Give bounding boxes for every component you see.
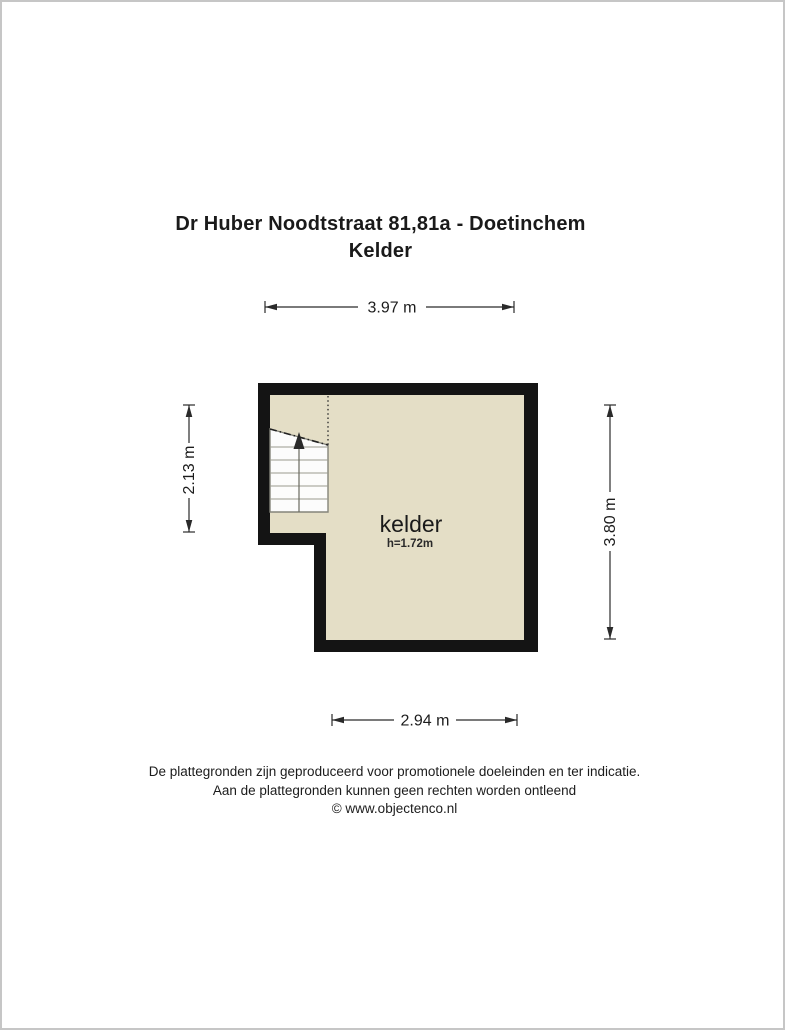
copyright-line: © www.objectenco.nl — [2, 800, 785, 819]
disclaimer: De plattegronden zijn geproduceerd voor … — [2, 763, 785, 819]
dimension-bottom-label: 2.94 m — [401, 713, 450, 730]
dimension-bottom: 2.94 m — [332, 713, 517, 730]
dimension-left-label: 2.13 m — [181, 446, 198, 495]
dimension-top-label: 3.97 m — [368, 300, 417, 317]
room-height-label: h=1.72m — [387, 538, 433, 550]
floorplan-page: Dr Huber Noodtstraat 81,81a - Doetinchem… — [0, 0, 785, 1030]
room-label: kelder — [380, 511, 443, 537]
dimension-left: 2.13 m — [181, 405, 198, 532]
dimension-top: 3.97 m — [265, 300, 514, 317]
dimension-right-label: 3.80 m — [602, 498, 619, 547]
floorplan-drawing: kelder h=1.72m 3.97 m 2.13 m — [2, 2, 785, 1030]
disclaimer-line-2: Aan de plattegronden kunnen geen rechten… — [2, 782, 785, 801]
disclaimer-line-1: De plattegronden zijn geproduceerd voor … — [2, 763, 785, 782]
dimension-right: 3.80 m — [602, 405, 619, 639]
